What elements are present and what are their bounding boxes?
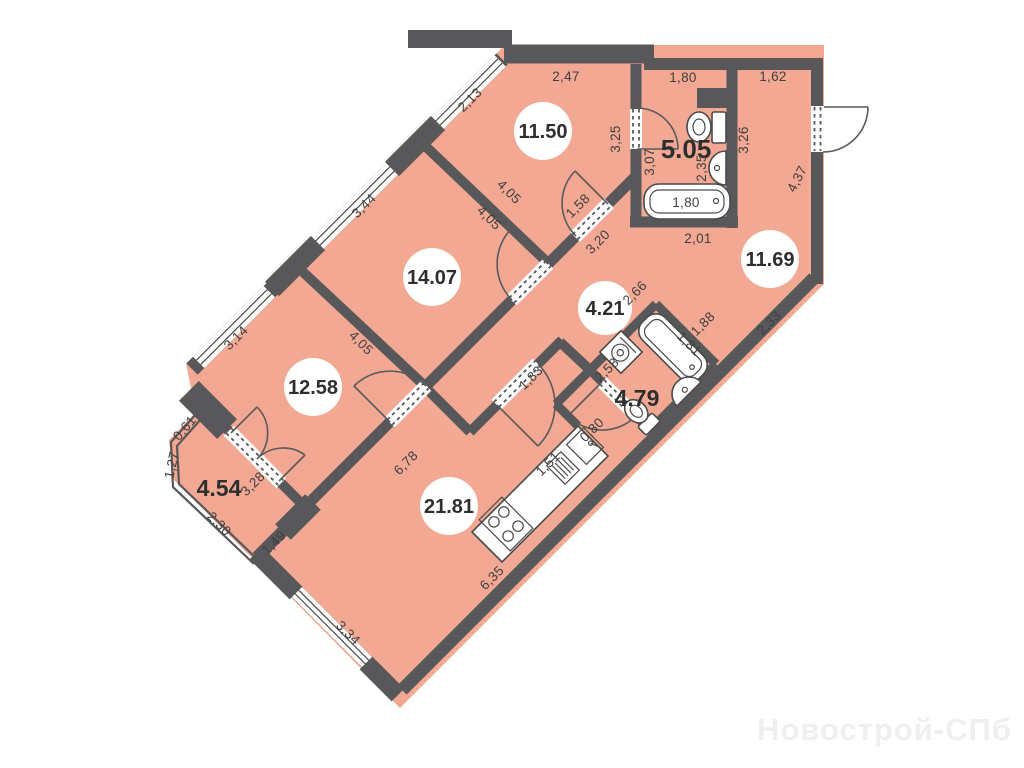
room-area-2181: 21.81 [424,496,474,518]
watermark-text: Новострой-СПб [757,712,1012,747]
dim-2-01: 2,01 [684,231,711,246]
room-label-1169: 11.69 [741,230,799,288]
apartment-floor [169,45,824,708]
room-label-421: 4.21 [578,281,632,335]
floor-plan-svg: 11.50 14.07 12.58 21.81 4.21 11.69 5.05 … [0,0,1024,768]
room-area-1407: 14.07 [407,267,457,289]
room-area-454: 4.54 [197,475,242,501]
room-area-1150: 11.50 [519,121,568,143]
room-label-1407: 14.07 [403,248,461,306]
dim-1-62: 1,62 [759,69,786,84]
room-area-479: 4.79 [615,385,660,411]
room-area-1258: 12.58 [288,377,338,399]
room-area-1169: 11.69 [746,249,795,271]
room-label-2181: 21.81 [420,477,478,535]
dim-3-26: 3,26 [736,126,751,153]
entrance-door [823,107,868,152]
dim-1-80-top: 1,80 [669,70,696,85]
room-area-421: 4.21 [586,298,625,320]
dim-1-80-tub: 1,80 [672,195,699,210]
dim-3-25: 3,25 [608,125,623,152]
dim-2-35: 2,35 [694,154,709,181]
room-label-1258: 12.58 [284,358,342,416]
room-label-1150: 11.50 [514,102,572,160]
floor-plan-screenshot: 11.50 14.07 12.58 21.81 4.21 11.69 5.05 … [0,0,1024,768]
dim-2-47: 2,47 [552,69,579,84]
opening-entrance [811,106,824,152]
dim-3-07: 3,07 [642,148,657,175]
opening-bath505 [630,109,642,149]
